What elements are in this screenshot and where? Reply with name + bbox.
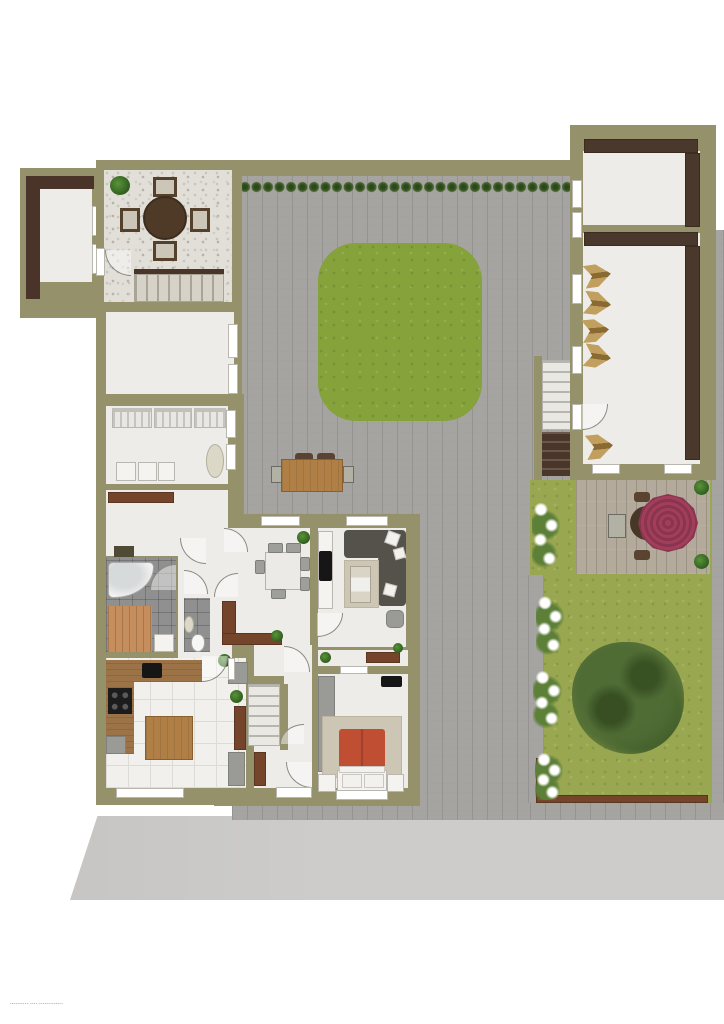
floor-plan-canvas: ---------- ---- ------------- [0,0,724,1024]
dining-chair-2 [286,543,301,553]
cooktop [108,688,132,714]
deck-chair-top [634,492,650,502]
bed-pillow-left [342,774,362,788]
outbuilding-room1-bench-top [584,139,698,153]
garage-window-2 [228,364,238,394]
shower-mat [154,634,174,652]
outbuilding-window-2 [572,212,582,238]
patio-door-leaf [96,248,105,276]
corridor-mat [114,546,134,557]
hall-cabinet [254,752,266,786]
dining-chair-5 [255,560,265,574]
passage-sideboard [366,652,400,663]
corridor-sideboard [108,492,174,503]
flower-cluster-1 [532,498,560,570]
outbuilding-window-bottom-2 [664,464,692,474]
courtyard-dining-table [281,459,343,492]
outbuilding-window-bottom-1 [592,464,620,474]
street-pavement [70,816,724,900]
patio-chair-top [153,177,177,197]
toilet [191,634,205,652]
bathroom-wood-mat [108,606,152,652]
coffee-table [350,566,371,603]
outbuilding-room1-bench-right [685,153,700,227]
deck-bush-top [694,480,709,495]
porch-beam-left [26,189,40,299]
side-table [386,610,404,628]
living-tv [319,551,332,581]
kitchen-bush-2 [230,690,243,703]
passage-wall-window [340,666,368,674]
patio-round-table [143,196,187,240]
wc-sink [184,616,194,633]
dining-chair-1 [268,543,283,553]
hedge-row [240,179,574,195]
bed-pillow-right [364,774,384,788]
entry-door-leaf [276,787,312,798]
nightstand-right [387,774,404,792]
garage-window-1 [228,324,238,358]
garden-tree [572,642,684,754]
patio-chair-right [190,208,210,232]
porch-floor [34,182,92,282]
outbuilding-window-4 [572,346,582,374]
sofa-right [378,556,406,606]
kitchen-table [145,716,193,760]
dining-chair-4 [300,577,310,591]
living-window-top [346,516,388,526]
garage-floor [106,312,234,394]
courtyard-top-wall [232,160,578,176]
central-lawn [318,243,482,421]
utility-window-2 [226,444,236,470]
flower-cluster-2 [536,593,564,655]
outbuilding-room2-bench-right [685,246,700,460]
dining-chair-3 [300,557,310,571]
kitchen-gray-cabinet [228,752,245,786]
patio-chair-left [120,208,140,232]
hall-stairs [248,684,280,746]
porch-beam-top [26,176,94,189]
deck-bush-bottom [694,554,709,569]
dining-window-top [261,516,300,526]
bedroom-tv [381,676,402,687]
dining-chair-6 [271,589,286,599]
courtyard-chair-right [343,466,354,483]
garden-stairs-wall [534,356,542,480]
ironing-board [206,444,224,478]
pavers-garden-bottom [530,803,724,820]
kitchen-door-leaf [228,658,235,680]
utility-window-1 [226,410,236,438]
patio-bush [110,176,130,195]
utility-appliance-3 [158,462,175,481]
outbuilding-window-1 [572,180,582,208]
outbuilding-door-leaf [572,404,582,430]
dining-table [265,552,301,590]
outbuilding-room1-floor [583,151,700,225]
stair-wall-top [246,676,284,684]
utility-appliance-2 [138,462,157,481]
nightstand-left [318,774,336,792]
patio-stairs [134,274,224,302]
deck-chair-left [608,514,626,538]
watermark-text: ---------- ---- ------------- [10,1002,130,1010]
outbuilding-window-3 [572,274,582,304]
utility-radiator-3 [194,408,226,428]
passage-bush-2 [393,643,403,653]
kitchen-base-cabinet [106,736,126,754]
utility-radiator-2 [154,408,192,428]
patio-chair-bottom [153,241,177,261]
kitchen-tall-cabinet [234,706,246,750]
kitchen-sink [142,663,162,678]
bedroom-window [336,790,388,800]
bed-sheet-fold [339,766,385,773]
utility-appliance-1 [116,462,136,481]
passage-bush-1 [320,652,331,663]
outbuilding-room2-bench-top [584,232,698,246]
dining-bush-2 [271,630,283,642]
kitchen-window [116,788,184,798]
flower-cluster-3 [533,668,563,728]
deck-chair-bottom [634,550,650,560]
utility-radiator-1 [112,408,152,428]
dining-bush-1 [297,531,310,544]
flower-cluster-4 [535,752,563,800]
